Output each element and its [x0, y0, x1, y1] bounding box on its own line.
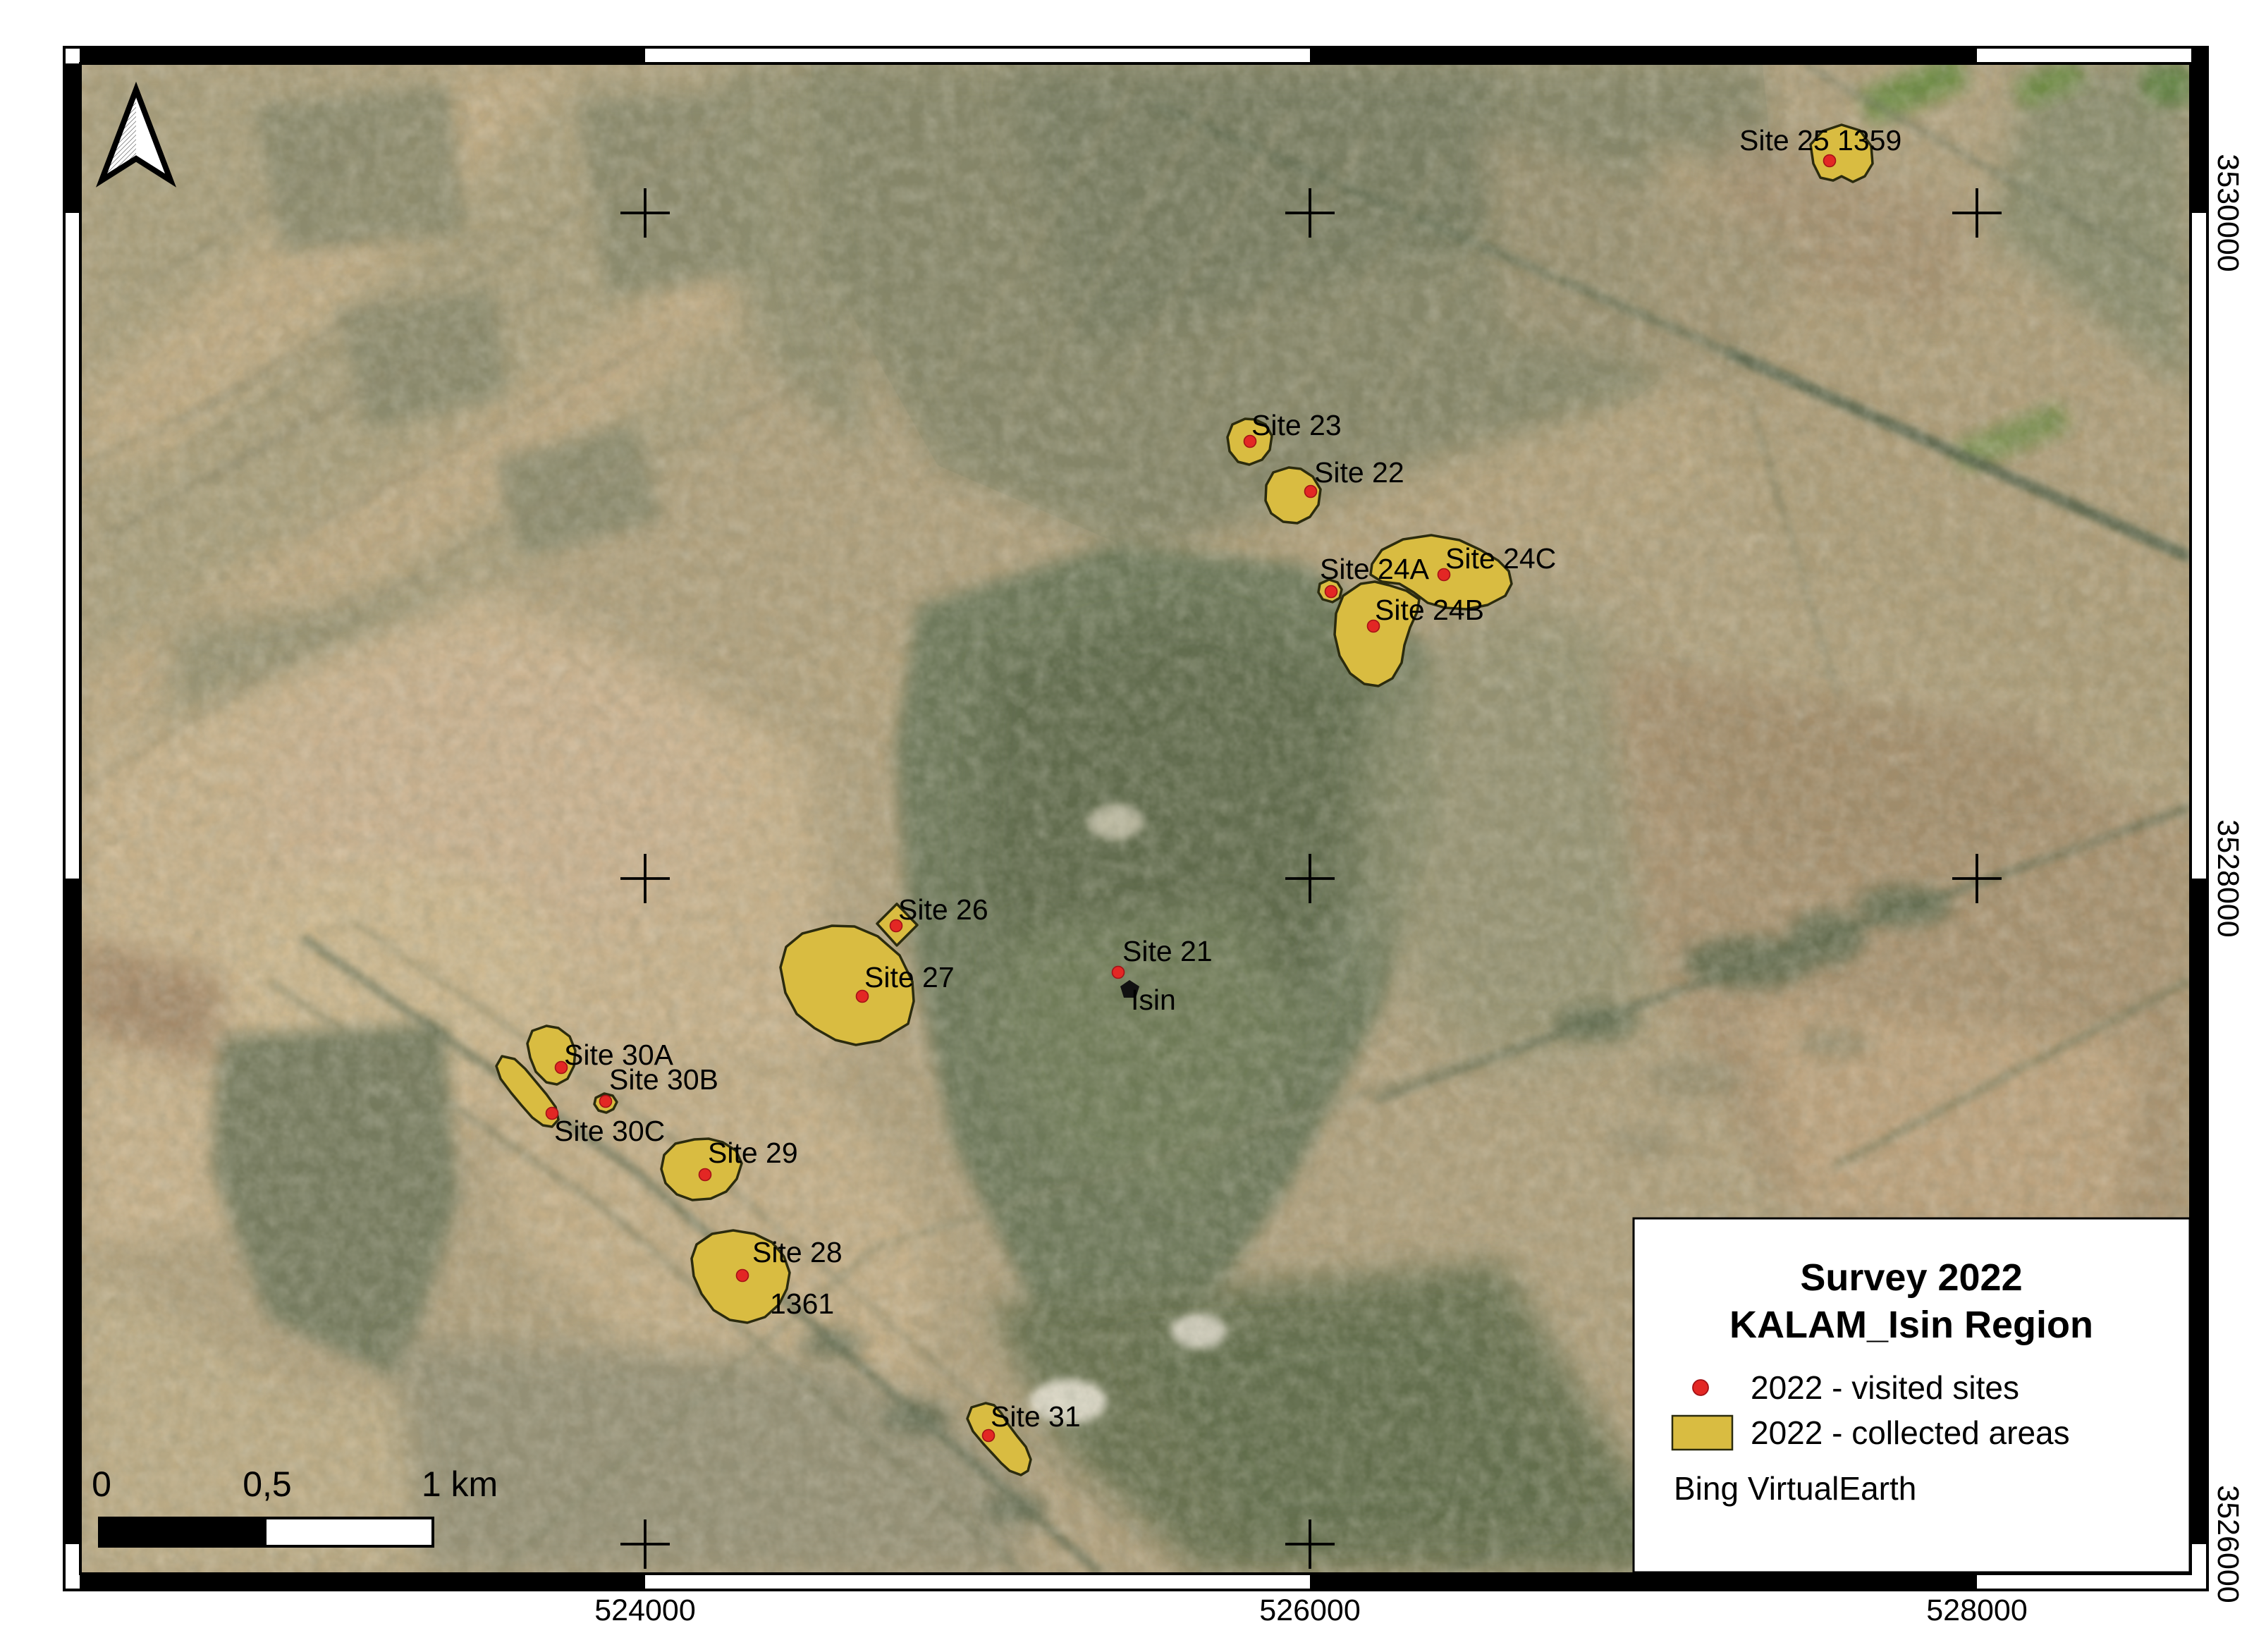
- svg-text:1 km: 1 km: [422, 1464, 498, 1504]
- svg-text:Site 24C: Site 24C: [1445, 542, 1556, 575]
- svg-text:Site 29: Site 29: [708, 1137, 798, 1169]
- svg-text:Site 30C: Site 30C: [554, 1115, 665, 1147]
- svg-text:Site 31: Site 31: [991, 1400, 1081, 1433]
- svg-text:Site 26: Site 26: [898, 893, 988, 926]
- svg-text:1361: 1361: [770, 1287, 834, 1320]
- svg-text:Bing VirtualEarth: Bing VirtualEarth: [1674, 1470, 1916, 1507]
- svg-text:524000: 524000: [594, 1593, 696, 1627]
- svg-text:2022 - collected areas: 2022 - collected areas: [1751, 1414, 2070, 1451]
- svg-text:0,5: 0,5: [243, 1464, 292, 1504]
- svg-text:3528000: 3528000: [2211, 819, 2245, 937]
- svg-text:3526000: 3526000: [2211, 1485, 2245, 1603]
- svg-text:3530000: 3530000: [2211, 154, 2245, 271]
- svg-text:KALAM_Isin Region: KALAM_Isin Region: [1729, 1304, 2093, 1346]
- svg-text:Site 21: Site 21: [1122, 935, 1213, 967]
- svg-text:Site 30B: Site 30B: [609, 1063, 718, 1096]
- svg-text:Isin: Isin: [1131, 984, 1176, 1016]
- svg-text:2022 - visited sites: 2022 - visited sites: [1751, 1369, 2019, 1406]
- svg-text:Site 23: Site 23: [1251, 409, 1342, 441]
- svg-text:Site 22: Site 22: [1314, 456, 1404, 489]
- svg-text:Survey 2022: Survey 2022: [1800, 1256, 2022, 1299]
- svg-text:Site 28: Site 28: [752, 1236, 843, 1268]
- svg-text:528000: 528000: [1926, 1593, 2028, 1627]
- svg-text:0: 0: [92, 1464, 111, 1504]
- svg-text:Site 25 1359: Site 25 1359: [1739, 124, 1901, 157]
- svg-text:526000: 526000: [1259, 1593, 1361, 1627]
- svg-text:Site 24A: Site 24A: [1320, 553, 1430, 585]
- svg-text:Site 24B: Site 24B: [1375, 594, 1484, 626]
- svg-text:Site 27: Site 27: [864, 961, 955, 993]
